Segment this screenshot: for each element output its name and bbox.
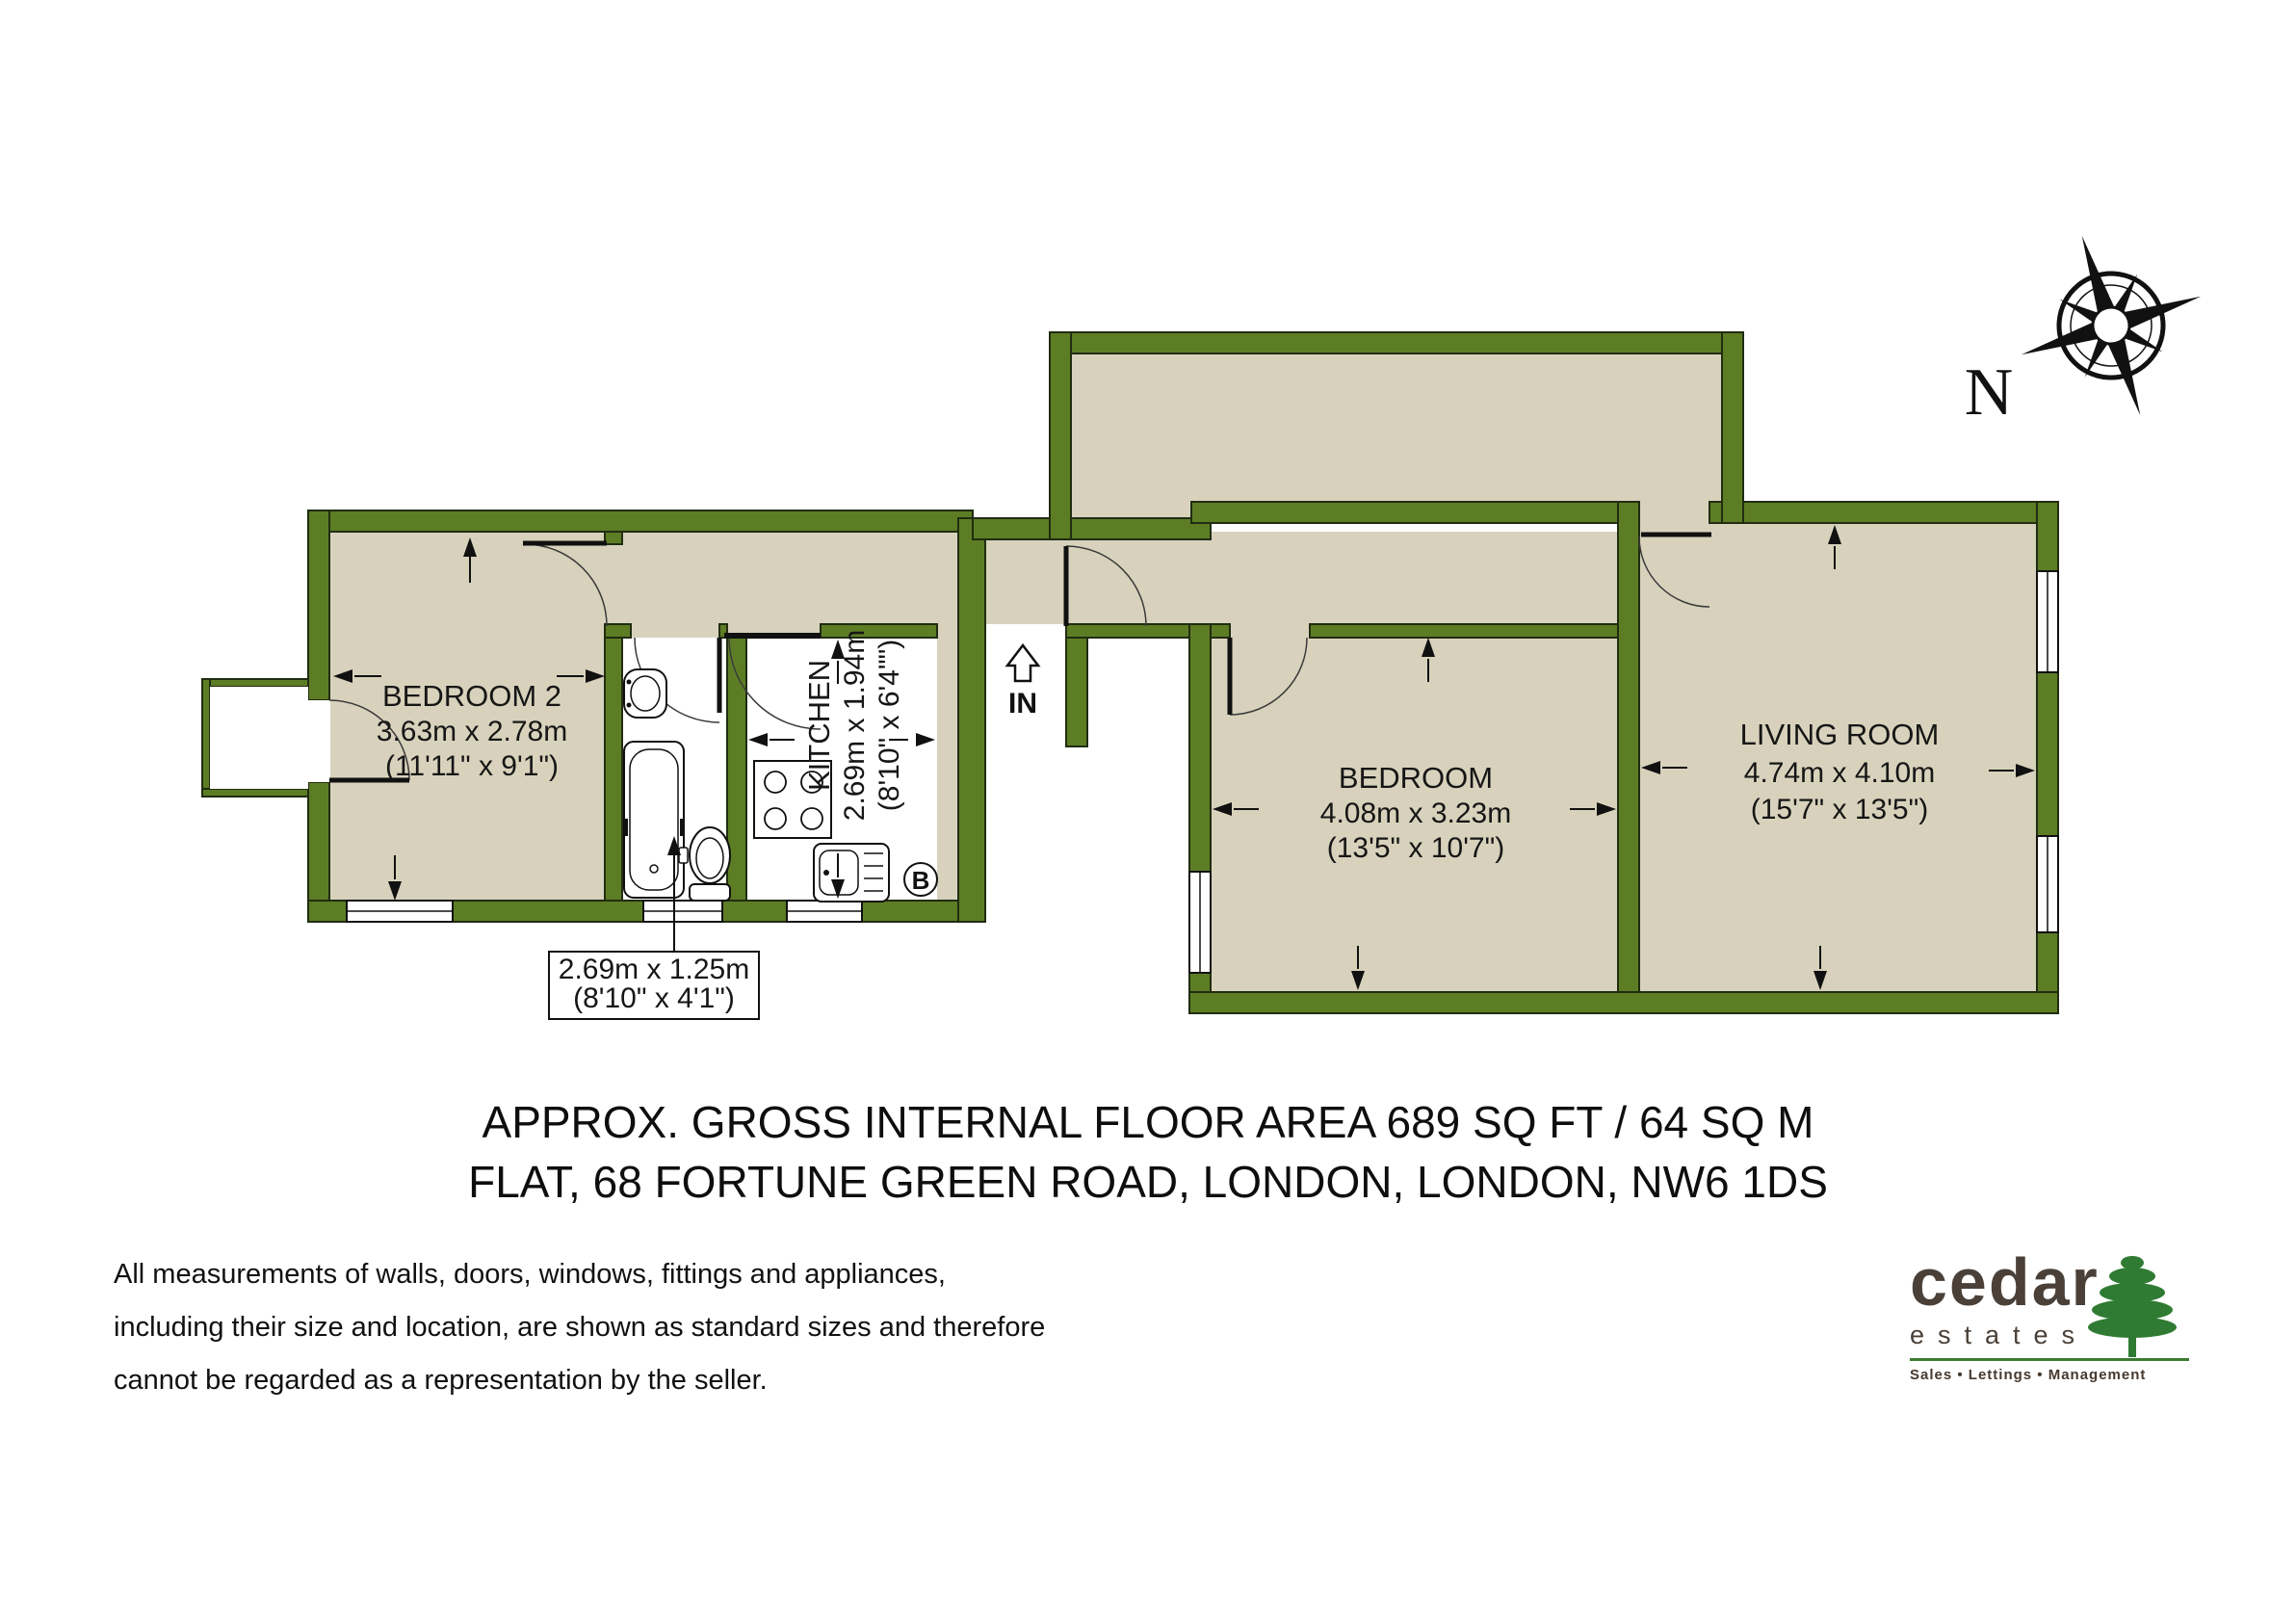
living-room-window-lower (2037, 836, 2058, 932)
floorplan-page: { "plan": { "colors": {"wall":"#5d7d25",… (0, 0, 2296, 1622)
bathroom-imperial: (8'10" x 4'1") (573, 982, 735, 1014)
bedroom2-window (347, 901, 453, 922)
living-room-imperial: (15'7" x 13'5") (1751, 794, 1929, 825)
bedroom2-door-gap (307, 700, 330, 782)
kitchen-metric: 2.69m x 1.94m (839, 630, 871, 821)
floors (329, 353, 2037, 992)
disclaimer: All measurements of walls, doors, window… (114, 1248, 1045, 1407)
boiler-symbol: B (904, 863, 937, 896)
bedroom-window (1189, 872, 1211, 973)
cedar-tree-icon (2079, 1251, 2185, 1359)
bedroom2-label: BEDROOM 2 3.63m x 2.78m (11'11" x 9'1") (377, 679, 567, 782)
living-room-metric: 4.74m x 4.10m (1744, 757, 1935, 789)
bedroom-imperial: (13'5" x 10'7") (1327, 832, 1505, 864)
porch-floor (210, 687, 308, 789)
living-room-name: LIVING ROOM (1740, 718, 1940, 751)
kitchen-name: KITCHEN (802, 660, 836, 791)
entrance-arrow-icon (1007, 645, 1038, 681)
living-room-label: LIVING ROOM 4.74m x 4.10m (15'7" x 13'5"… (1740, 718, 1940, 825)
corridor-floor (958, 532, 1618, 624)
bedroom-metric: 4.08m x 3.23m (1320, 798, 1511, 829)
bathtub (623, 742, 685, 898)
compass-north-label: N (1965, 355, 2014, 430)
agency-logo: cedar estates Sales • Lettings • Managem… (1910, 1245, 2191, 1383)
floor-area-title: APPROX. GROSS INTERNAL FLOOR AREA 689 SQ… (0, 1092, 2296, 1152)
bathroom-window (643, 901, 722, 922)
disclaimer-line3: cannot be regarded as a representation b… (114, 1354, 1045, 1407)
boiler-label: B (912, 866, 930, 895)
bathroom-metric: 2.69m x 1.25m (559, 954, 749, 985)
basin (624, 669, 666, 718)
logo-tagline: Sales • Lettings • Management (1910, 1367, 2191, 1383)
living-room-window-upper (2037, 571, 2058, 672)
address-title: FLAT, 68 FORTUNE GREEN ROAD, LONDON, LON… (0, 1152, 2296, 1212)
title-block: APPROX. GROSS INTERNAL FLOOR AREA 689 SQ… (0, 1092, 2296, 1212)
kitchen-imperial: (8'10" x 6'4"") (874, 640, 905, 811)
disclaimer-line2: including their size and location, are s… (114, 1301, 1045, 1354)
hallway-floor (1071, 353, 1722, 523)
entrance-marker: IN (1007, 645, 1038, 719)
compass-rose-icon: N (1965, 207, 2231, 445)
bedroom2-imperial: (11'11" x 9'1") (385, 750, 559, 782)
kitchen-sink (814, 844, 889, 902)
bedroom-label: BEDROOM 4.08m x 3.23m (13'5" x 10'7") (1320, 761, 1511, 864)
kitchen-window (787, 901, 862, 922)
bedroom2-metric: 3.63m x 2.78m (377, 716, 567, 747)
bedroom-name: BEDROOM (1339, 761, 1493, 795)
bedroom2-name: BEDROOM 2 (382, 679, 561, 713)
entrance-label: IN (1008, 688, 1037, 719)
disclaimer-line1: All measurements of walls, doors, window… (114, 1248, 1045, 1301)
